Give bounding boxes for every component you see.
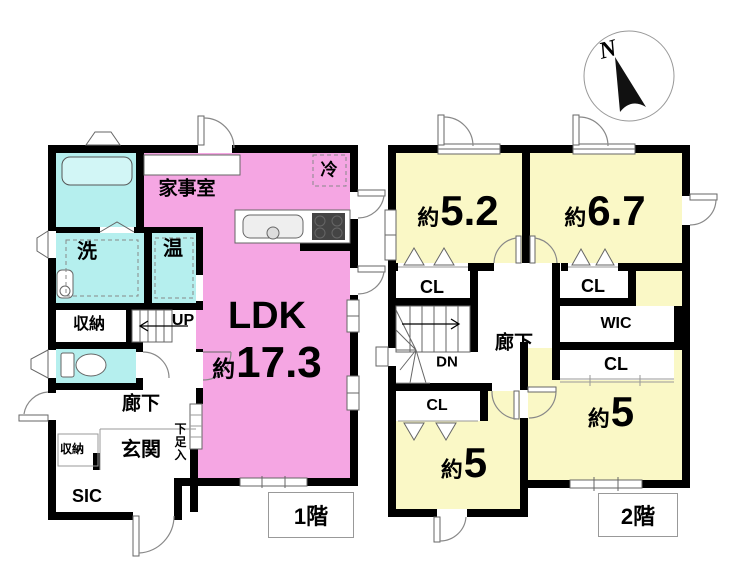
label-water-heater: 温 <box>163 239 183 259</box>
right-casement-window-1-icon <box>358 190 385 196</box>
kajishitsu-counter-icon <box>144 155 240 175</box>
floorplan-image: N 家事室 冷 洗 温 収納 UP LDK 約17.3 廊下 玄関 下足入 収納… <box>0 0 740 567</box>
side-door-icon <box>19 415 48 421</box>
label-entrance: 玄関 <box>121 440 161 460</box>
label-storage-upper: 収納 <box>73 317 105 333</box>
label-stairs-down: DN <box>436 355 458 370</box>
floor2-plan <box>376 115 717 542</box>
label-closet2: CL <box>581 277 605 295</box>
room5right-bottom-window-icon <box>570 480 642 488</box>
label-room52-area: 約5.2 <box>417 190 498 232</box>
floor1-tag: 1階 <box>268 492 354 538</box>
label-ldk-name: LDK <box>228 297 306 335</box>
top-casement-window-icon <box>198 116 204 145</box>
label-ldk-area: 約17.3 <box>212 341 322 385</box>
label-refrigerator: 冷 <box>321 162 338 179</box>
room67-right-window-icon <box>690 194 717 200</box>
toilet-window-icon <box>31 350 48 378</box>
washbasin-icon <box>57 270 73 298</box>
label-hallway-2f: 廊下 <box>495 334 533 353</box>
stairs-window-icon <box>376 347 388 366</box>
laundry-window-icon <box>37 231 48 258</box>
room5left-bottom-window-icon <box>434 517 440 542</box>
bathtub-icon <box>62 157 132 185</box>
right-casement-window-2-icon <box>358 266 385 272</box>
room67-door-icon <box>530 236 535 263</box>
toilet-fixture-icon <box>61 353 74 377</box>
ldk-bottom-window-icon <box>240 478 307 486</box>
label-wic: WIC <box>600 316 631 332</box>
label-storage-lower: 収納 <box>60 443 84 455</box>
label-closet3: CL <box>604 355 628 373</box>
label-shoe-cabinet: 下足入 <box>174 423 186 462</box>
toilet-door-icon <box>143 352 169 378</box>
label-sic: SIC <box>72 487 102 505</box>
label-room67-area: 約6.7 <box>564 190 645 232</box>
bath-vent-icon <box>86 132 120 145</box>
stairs-2f-icon <box>396 306 470 383</box>
room5left-door-icon <box>514 391 519 419</box>
label-laundry: 洗 <box>77 242 97 262</box>
floor2-tag: 2階 <box>598 493 678 537</box>
room52-door-icon <box>516 236 521 263</box>
label-room5right-area: 約5 <box>588 391 634 433</box>
floorplan-svg <box>0 0 740 567</box>
label-hallway-1f: 廊下 <box>122 395 160 414</box>
room5right-door-icon <box>528 387 556 392</box>
label-closet4: CL <box>426 398 447 414</box>
entrance-door-icon <box>133 516 139 556</box>
label-room5left-area: 約5 <box>441 442 487 484</box>
label-closet1: CL <box>420 278 444 296</box>
label-kajishitsu: 家事室 <box>158 180 215 199</box>
label-stairs-up: UP <box>172 313 194 329</box>
